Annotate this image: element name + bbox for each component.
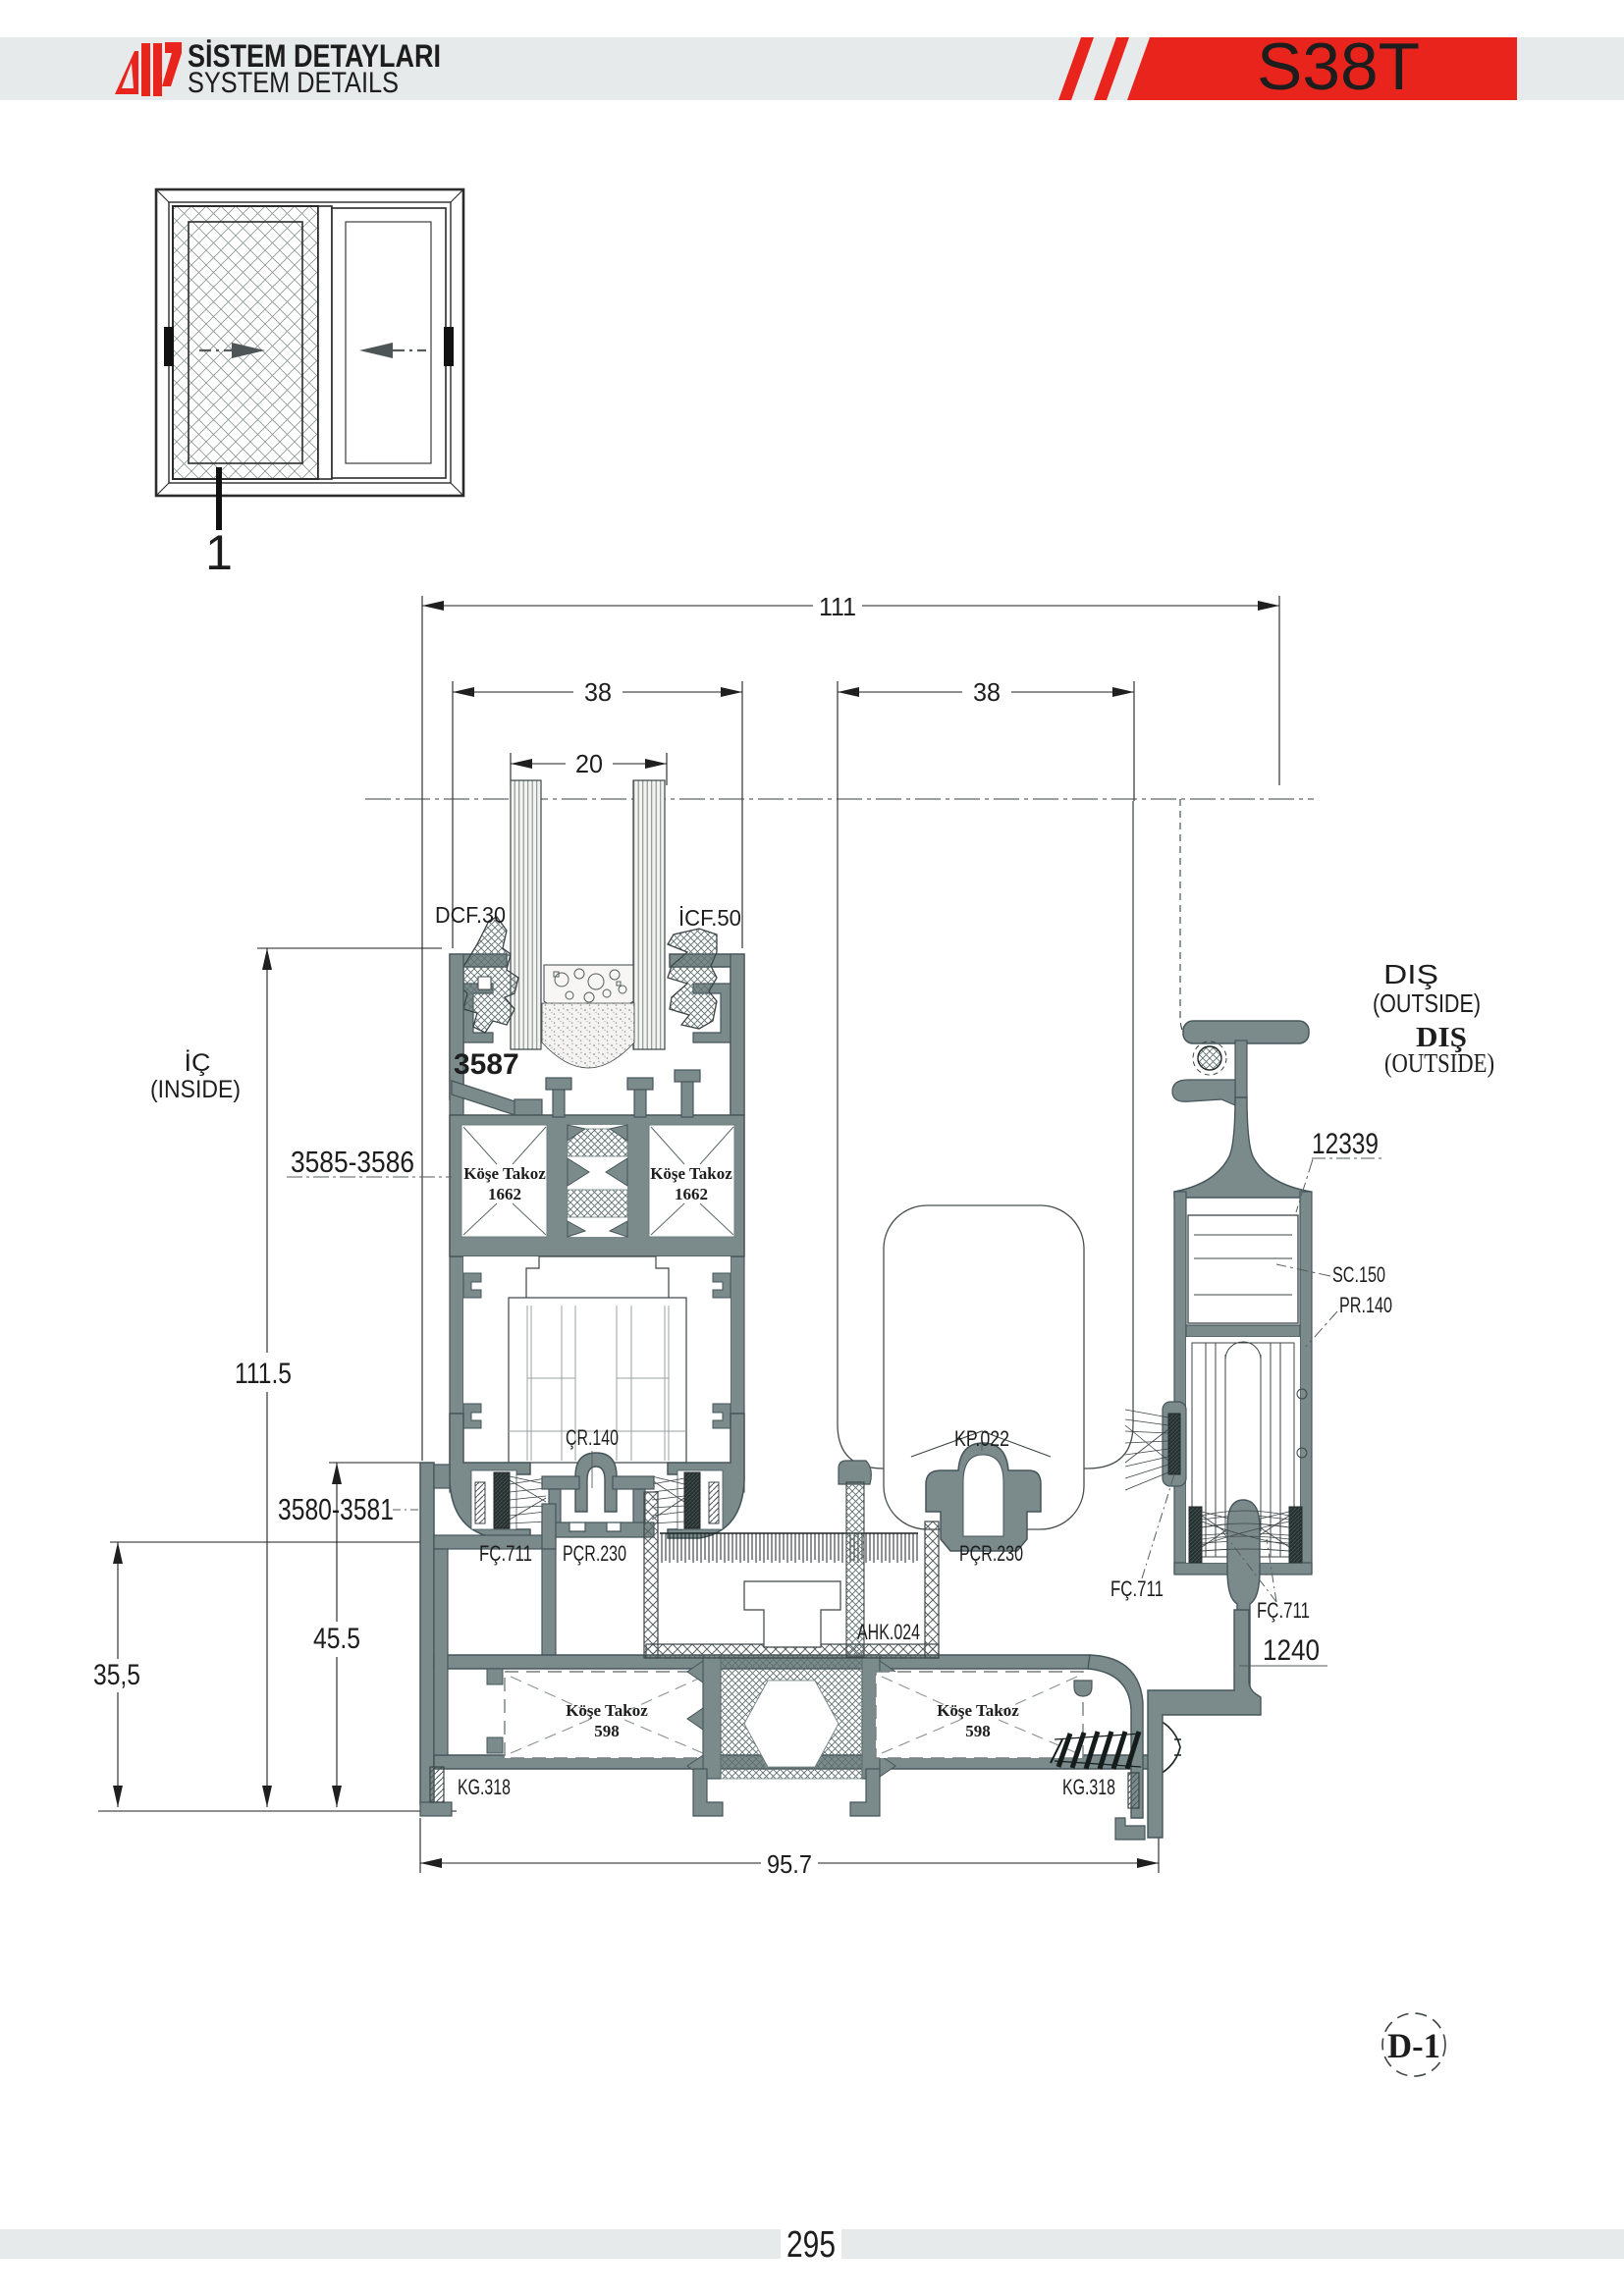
svg-text:KG.318: KG.318 [458,1775,511,1799]
svg-text:SC.150: SC.150 [1332,1262,1385,1287]
svg-text:SYSTEM DETAILS: SYSTEM DETAILS [188,67,399,99]
svg-text:45.5: 45.5 [313,1623,360,1655]
svg-text:38: 38 [584,677,612,707]
svg-text:Köşe Takoz: Köşe Takoz [463,1164,546,1183]
svg-text:111: 111 [819,592,856,621]
svg-text:FÇ.711: FÇ.711 [479,1541,532,1566]
svg-text:3585-3586: 3585-3586 [291,1145,414,1179]
svg-text:12339: 12339 [1312,1128,1379,1160]
svg-text:(INSIDE): (INSIDE) [150,1076,241,1103]
svg-text:DIŞ: DIŞ [1383,959,1438,989]
svg-text:Köşe Takoz: Köşe Takoz [650,1164,732,1183]
svg-text:DCF.30: DCF.30 [435,902,506,928]
svg-text:(OUTSIDE): (OUTSIDE) [1384,1048,1494,1078]
svg-text:3587: 3587 [454,1048,519,1081]
svg-text:FÇ.711: FÇ.711 [1257,1598,1310,1623]
svg-text:1: 1 [205,525,233,580]
svg-text:PÇR.230: PÇR.230 [563,1541,626,1566]
svg-text:PR.140: PR.140 [1339,1293,1392,1317]
svg-text:1662: 1662 [675,1185,708,1203]
svg-text:111.5: 111.5 [235,1358,292,1390]
svg-text:598: 598 [965,1722,991,1740]
svg-text:20: 20 [575,749,603,778]
svg-text:KG.318: KG.318 [1062,1775,1115,1799]
svg-text:AHK.024: AHK.024 [857,1620,920,1644]
svg-text:3580-3581: 3580-3581 [278,1492,394,1526]
svg-text:D-1: D-1 [1387,2026,1440,2065]
svg-text:FÇ.711: FÇ.711 [1110,1576,1164,1601]
svg-text:95.7: 95.7 [767,1849,812,1879]
svg-text:1662: 1662 [488,1185,521,1203]
svg-text:ÇR.140: ÇR.140 [566,1425,619,1450]
svg-text:S38T: S38T [1257,29,1420,104]
svg-text:Köşe Takoz: Köşe Takoz [566,1701,648,1720]
svg-text:İÇ: İÇ [185,1048,211,1077]
svg-text:KP.022: KP.022 [954,1426,1009,1451]
svg-text:PÇR.230: PÇR.230 [959,1541,1023,1566]
svg-text:Köşe Takoz: Köşe Takoz [937,1701,1019,1720]
svg-text:295: 295 [786,2224,836,2266]
svg-text:1240: 1240 [1263,1634,1320,1667]
svg-text:İCF.50: İCF.50 [678,905,741,931]
svg-text:598: 598 [594,1722,620,1740]
svg-text:(OUTSIDE): (OUTSIDE) [1373,988,1481,1018]
svg-text:35,5: 35,5 [93,1659,140,1691]
svg-text:38: 38 [973,677,1001,707]
